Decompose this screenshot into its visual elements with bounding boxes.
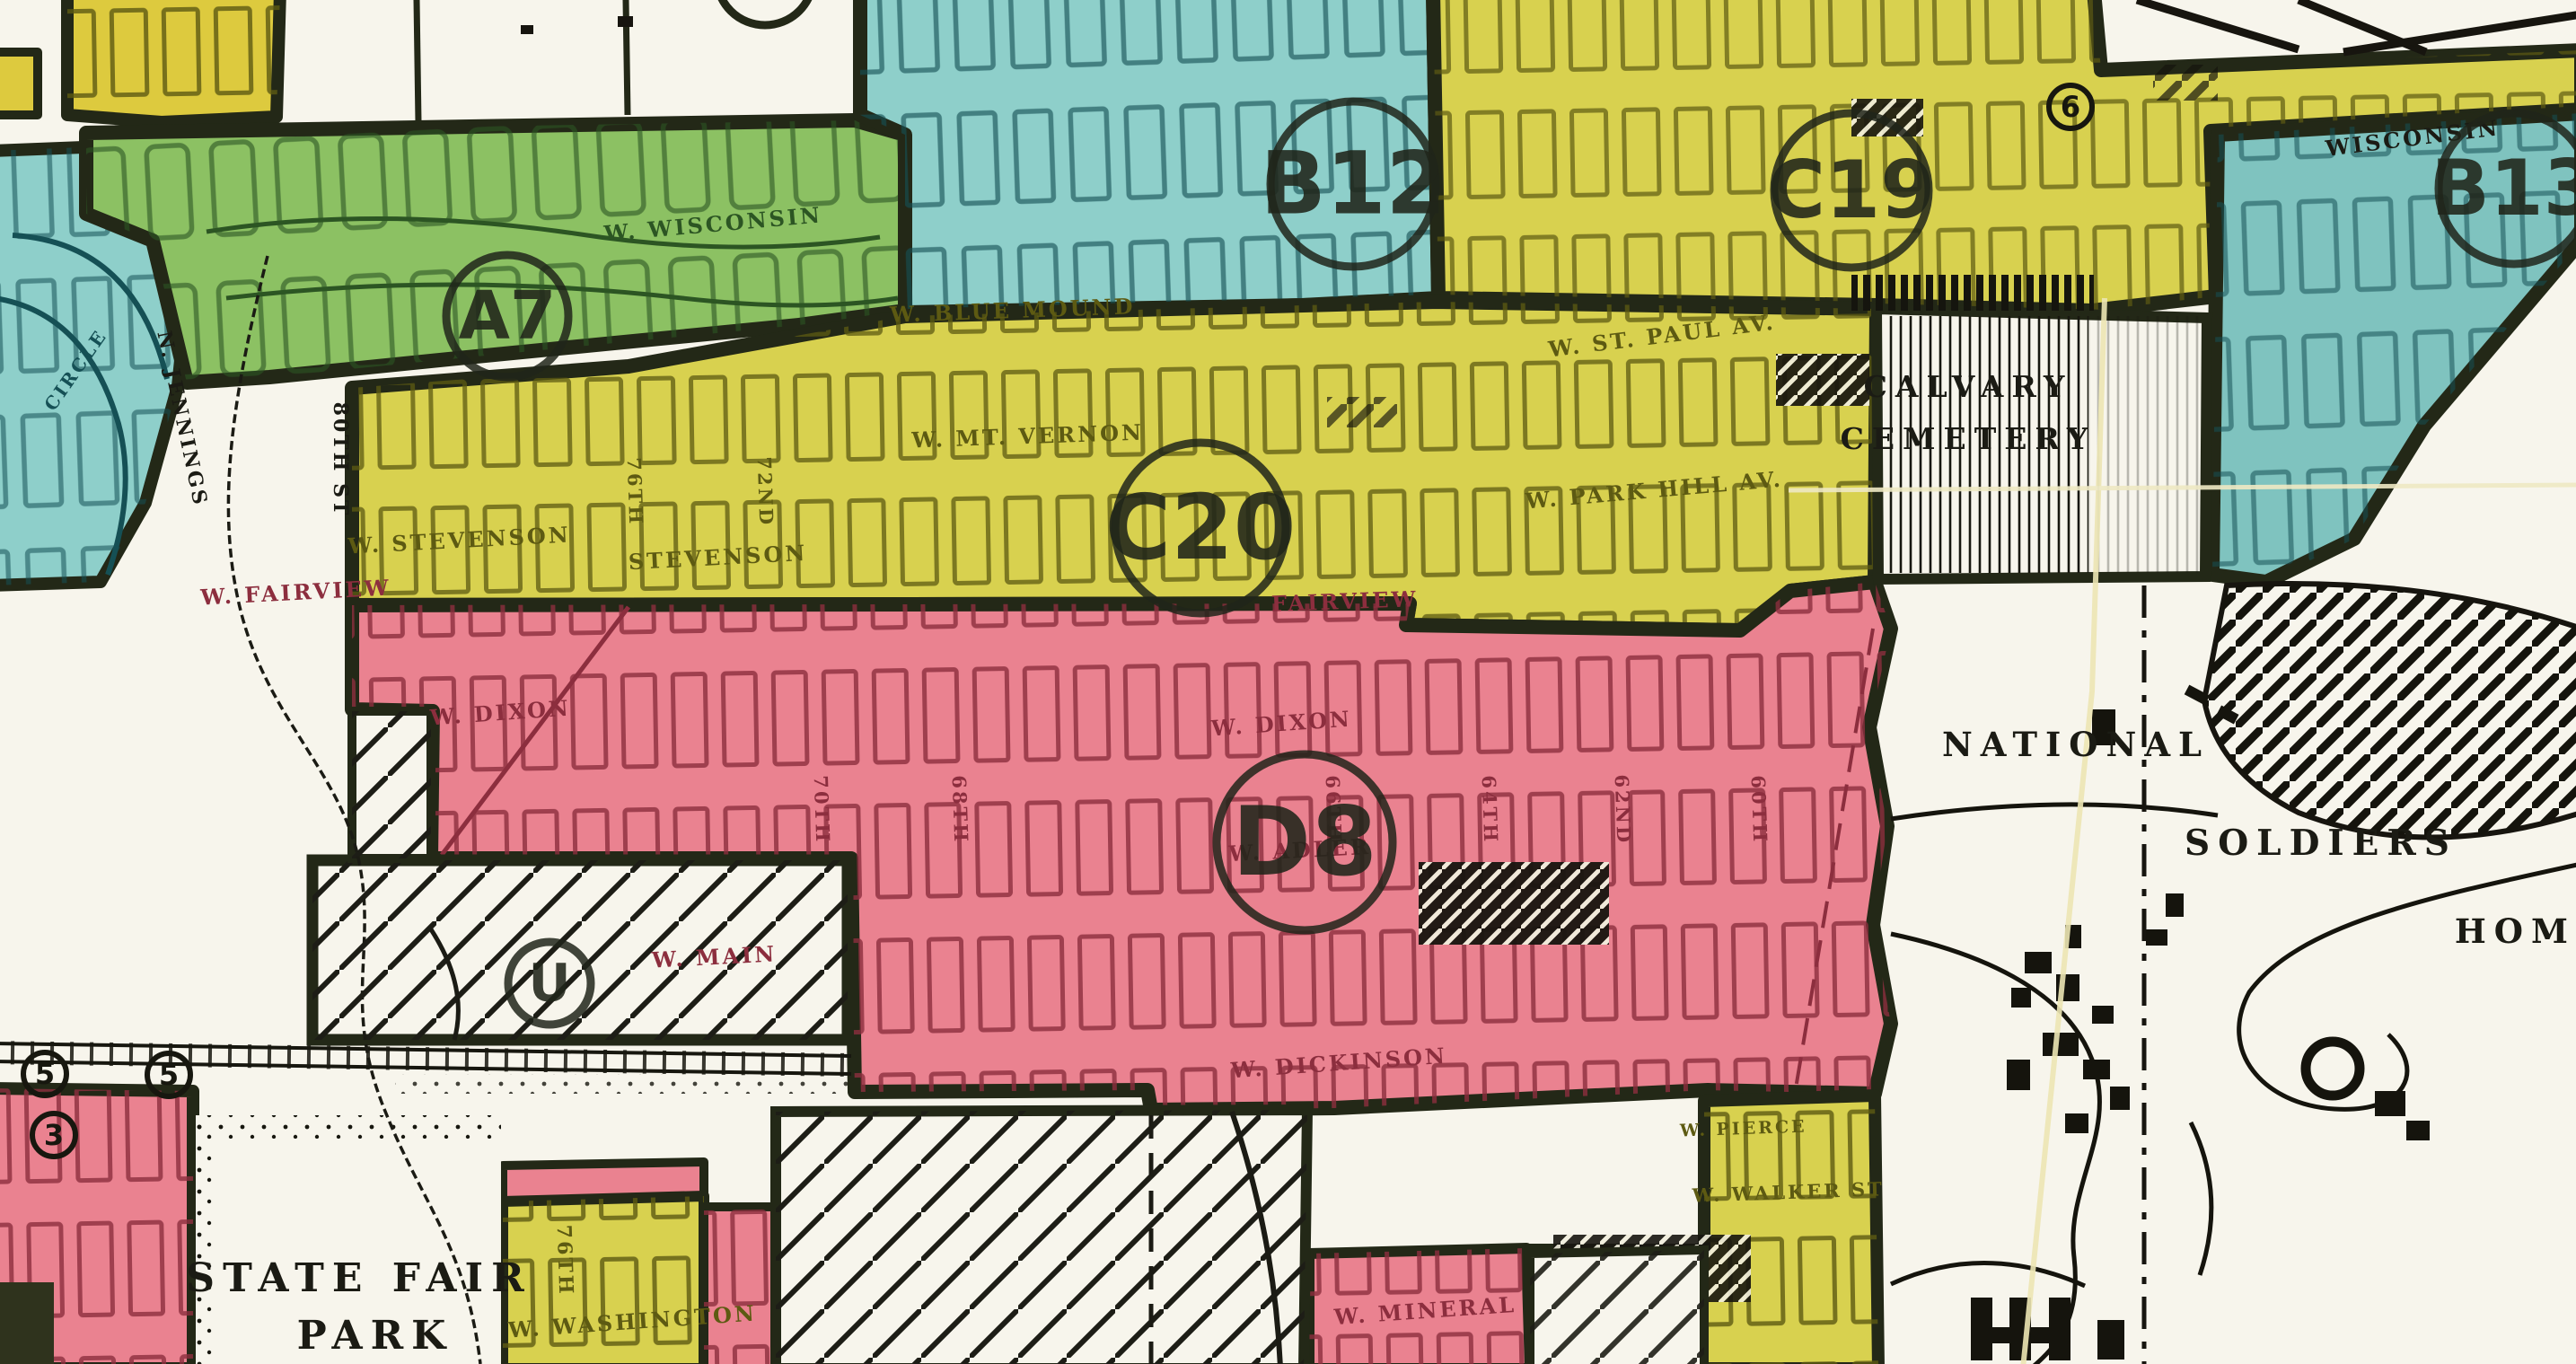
place-label-state-fair: STATE FAIR — [186, 1255, 532, 1301]
marker-text: 5 — [35, 1057, 55, 1091]
street-label-fairview: FAIRVIEW — [1270, 585, 1419, 617]
structures-row — [1851, 275, 2094, 311]
street-label-76th: 76TH — [623, 457, 648, 527]
place-label-calvary: CALVARY — [1864, 369, 2073, 404]
zone-stamp-text-c20: C20 — [1105, 475, 1297, 580]
zone-stamp-text-a7: A7 — [459, 277, 557, 355]
place-label-soldiers: SOLDIERS — [2185, 823, 2457, 864]
zone-pink-bottom-left — [0, 1088, 193, 1364]
hatched-block-d8 — [1419, 862, 1609, 945]
street-label-62nd: 62ND — [1611, 774, 1636, 845]
map-scan: W. WISCONSINWISCONSINW. BLUE MOUNDW. MT.… — [0, 0, 2576, 1364]
zone-stamp-text-b12: B12 — [1261, 134, 1446, 234]
hatched-block-c20 — [1776, 354, 1869, 406]
place-label-cemetery: CEMETERY — [1841, 421, 2097, 456]
street-label-64th: 64TH — [1478, 775, 1503, 845]
street-label-72nd: 72ND — [753, 456, 778, 527]
zone-stamp-text-u: U — [528, 953, 570, 1014]
marker-text: 6 — [2061, 90, 2080, 124]
place-label-park: PARK — [297, 1313, 454, 1359]
map-canvas: W. WISCONSINWISCONSINW. BLUE MOUNDW. MT.… — [0, 0, 2576, 1364]
marker-text: 5 — [159, 1058, 179, 1092]
street-label-76th: 76TH — [552, 1224, 578, 1297]
zone-stamp-text-d8: D8 — [1232, 787, 1377, 897]
street-label-80th-st: 80TH ST — [329, 402, 352, 518]
place-label-home: HOME — [2455, 911, 2576, 951]
zone-stamp-text-b13: B13 — [2431, 144, 2576, 233]
street-label-68th: 68TH — [948, 775, 973, 845]
marker-text: 3 — [44, 1118, 64, 1152]
street-label-70th: 70TH — [810, 775, 835, 845]
zone-stamp-text-c19: C19 — [1767, 144, 1935, 236]
place-label-national: NATIONAL — [1942, 725, 2210, 764]
street-label-60th: 60TH — [1747, 775, 1772, 845]
